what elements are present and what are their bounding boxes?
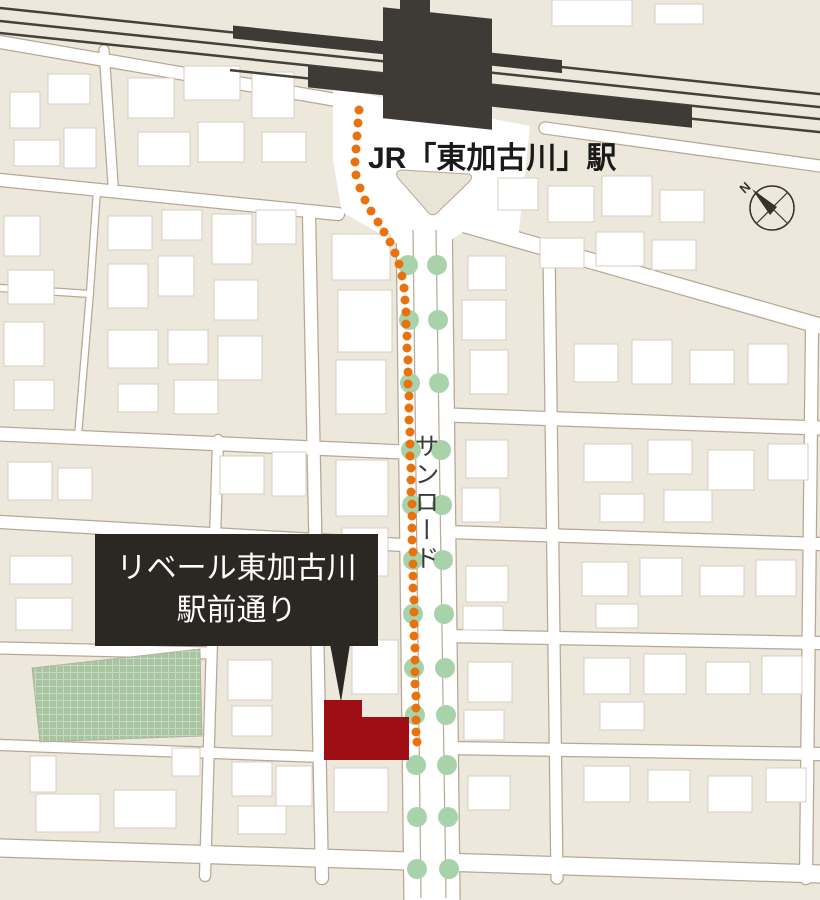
route-dot bbox=[409, 548, 418, 557]
route-dot bbox=[409, 560, 418, 569]
route-dot bbox=[355, 106, 364, 115]
route-dot bbox=[407, 488, 416, 497]
street-tree-dot bbox=[438, 807, 458, 827]
route-dot bbox=[410, 596, 419, 605]
route-dot bbox=[406, 440, 415, 449]
route-dot bbox=[408, 512, 417, 521]
route-dot bbox=[400, 284, 409, 293]
route-dot bbox=[402, 308, 411, 317]
route-dot bbox=[351, 158, 360, 167]
route-dot bbox=[356, 184, 365, 193]
route-dot bbox=[405, 392, 414, 401]
street-tree-dot bbox=[433, 550, 453, 570]
map-stage: N JR「東加古川」駅 サンロード リベール東加古川 駅前通り bbox=[0, 0, 820, 900]
route-dot bbox=[407, 464, 416, 473]
route-dot bbox=[367, 207, 376, 216]
street-tree-dot bbox=[428, 310, 448, 330]
route-dot bbox=[409, 584, 418, 593]
route-dot bbox=[354, 119, 363, 128]
route-dot bbox=[411, 680, 420, 689]
route-dot bbox=[386, 238, 395, 247]
route-dot bbox=[406, 428, 415, 437]
route-dot bbox=[405, 404, 414, 413]
route-dot bbox=[403, 344, 412, 353]
street-tree-dot bbox=[439, 859, 459, 879]
route-dot bbox=[398, 272, 407, 281]
route-dot bbox=[352, 171, 361, 180]
route-dot bbox=[404, 380, 413, 389]
route-dot bbox=[391, 249, 400, 258]
route-dot bbox=[361, 196, 370, 205]
route-dot bbox=[408, 524, 417, 533]
route-dot bbox=[412, 692, 421, 701]
street-tree-dot bbox=[431, 440, 451, 460]
route-dot bbox=[411, 656, 420, 665]
street-tree-dot bbox=[437, 755, 457, 775]
route-dot bbox=[410, 632, 419, 641]
route-dot bbox=[410, 608, 419, 617]
route-dot bbox=[413, 738, 422, 747]
street-tree-dot bbox=[429, 373, 449, 393]
route-dot bbox=[352, 145, 361, 154]
road bbox=[448, 748, 820, 754]
road bbox=[448, 636, 820, 643]
route-dot bbox=[412, 716, 421, 725]
route-dot bbox=[402, 320, 411, 329]
route-dot bbox=[395, 260, 404, 269]
street-tree-dot bbox=[427, 255, 447, 275]
route-dot bbox=[403, 332, 412, 341]
route-dot bbox=[353, 132, 362, 141]
route-dot bbox=[412, 728, 421, 737]
route-dot bbox=[411, 644, 420, 653]
route-dot bbox=[404, 356, 413, 365]
route-dot bbox=[405, 416, 414, 425]
route-dot bbox=[401, 296, 410, 305]
street-tree-dot bbox=[435, 658, 455, 678]
location-map: N bbox=[0, 0, 820, 900]
route-dot bbox=[380, 228, 389, 237]
street-tree-dot bbox=[432, 495, 452, 515]
route-dot bbox=[374, 218, 383, 227]
route-dot bbox=[411, 668, 420, 677]
route-dot bbox=[408, 500, 417, 509]
route-dot bbox=[404, 368, 413, 377]
street-tree-dot bbox=[407, 807, 427, 827]
route-dot bbox=[410, 620, 419, 629]
route-dot bbox=[412, 704, 421, 713]
route-dot bbox=[406, 452, 415, 461]
street-tree-dot bbox=[407, 859, 427, 879]
street-tree-dot bbox=[436, 705, 456, 725]
route-dot bbox=[409, 572, 418, 581]
route-dot bbox=[407, 476, 416, 485]
route-dot bbox=[408, 536, 417, 545]
street-tree-dot bbox=[434, 604, 454, 624]
road bbox=[806, 330, 812, 878]
